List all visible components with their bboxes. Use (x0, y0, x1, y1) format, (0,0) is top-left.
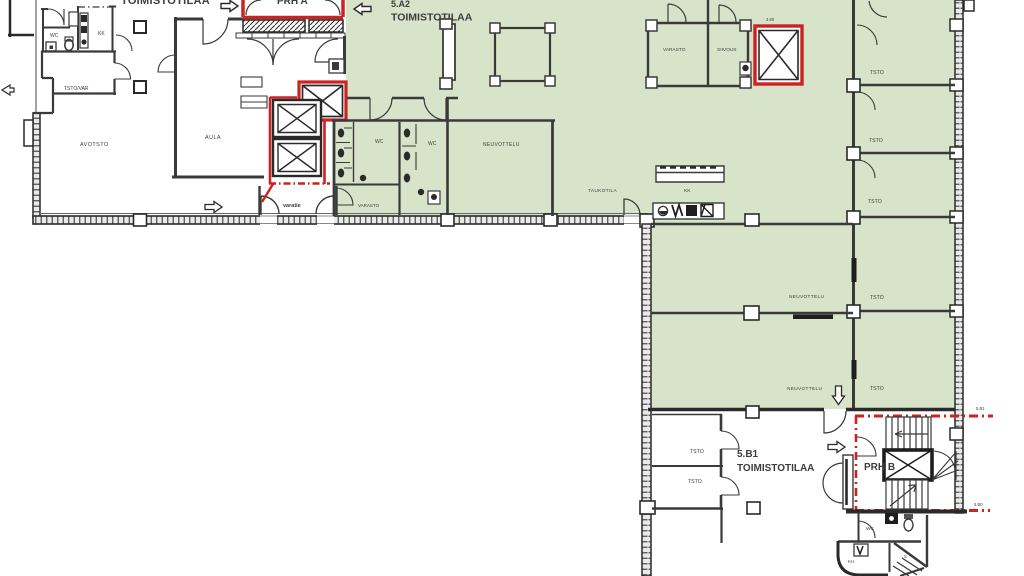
svg-text:NEUVOTTELU: NEUVOTTELU (789, 294, 824, 300)
svg-text:TSTO: TSTO (870, 295, 884, 301)
svg-text:4.80: 4.80 (766, 17, 775, 22)
svg-text:TSTO: TSTO (688, 479, 702, 485)
svg-text:5.B0: 5.B0 (974, 502, 983, 507)
svg-text:WC: WC (375, 139, 384, 145)
svg-text:TSTO: TSTO (870, 70, 884, 76)
svg-text:PRH B: PRH B (864, 462, 895, 473)
svg-text:KH: KH (848, 559, 854, 564)
svg-text:AULA: AULA (205, 135, 221, 141)
svg-text:TSTO: TSTO (868, 199, 882, 205)
svg-text:KK: KK (684, 188, 691, 194)
svg-text:AVOTSTO: AVOTSTO (80, 142, 109, 148)
svg-text:TOIMISTOTILAA: TOIMISTOTILAA (737, 463, 814, 474)
svg-text:TSTO: TSTO (690, 449, 704, 455)
svg-text:NEUVOTTELU: NEUVOTTELU (787, 386, 822, 392)
svg-text:5.A2: 5.A2 (391, 0, 410, 9)
svg-text:KK: KK (98, 31, 105, 37)
svg-text:VARASTO: VARASTO (663, 47, 686, 53)
svg-text:WC: WC (50, 33, 59, 39)
svg-text:VARASTO: VARASTO (358, 203, 380, 208)
svg-text:TSTO/VAR: TSTO/VAR (64, 86, 89, 92)
svg-text:5.B1: 5.B1 (737, 449, 759, 460)
svg-text:TOIMISTOTILAA: TOIMISTOTILAA (121, 0, 210, 7)
svg-text:TOIMISTOTILAA: TOIMISTOTILAA (391, 12, 473, 24)
svg-text:WC: WC (428, 141, 437, 147)
svg-text:varatie: varatie (283, 203, 301, 209)
svg-text:S: S (904, 554, 907, 559)
svg-text:TSTO: TSTO (870, 386, 884, 392)
svg-text:WC: WC (866, 526, 875, 532)
svg-text:TSTO: TSTO (869, 138, 883, 144)
svg-text:SIIVOUS: SIIVOUS (717, 47, 736, 53)
svg-text:5.B1: 5.B1 (976, 406, 985, 411)
svg-text:PRH A: PRH A (277, 0, 308, 7)
svg-text:NEUVOTTELU: NEUVOTTELU (483, 142, 520, 148)
svg-text:TAUKOTILA: TAUKOTILA (588, 188, 617, 194)
